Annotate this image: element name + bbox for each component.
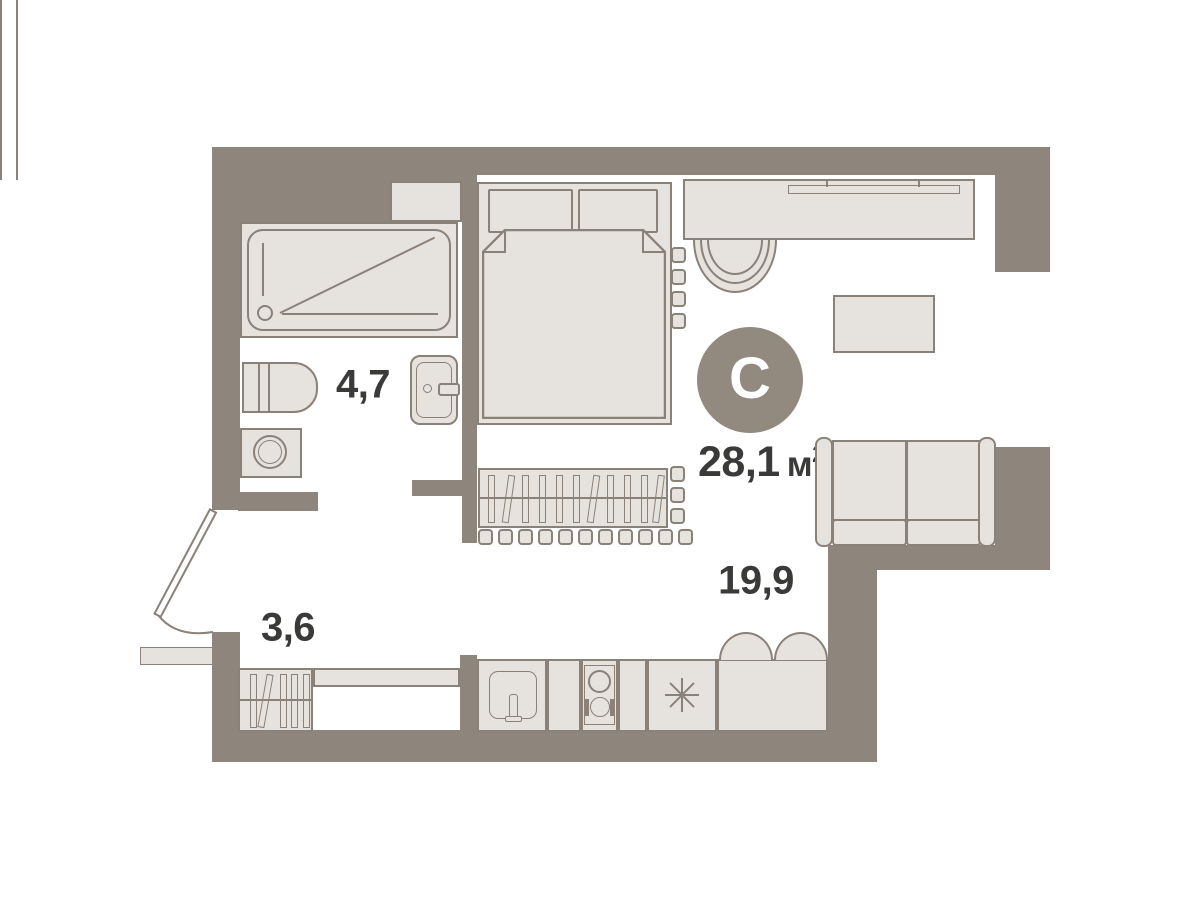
sofa-back-cushion — [832, 519, 907, 546]
desk-shelf — [788, 185, 960, 194]
radiator-segment — [658, 529, 673, 545]
hallway-shelf — [313, 668, 460, 687]
floor-plan: С 28,1м2 4,7 3,6 19,9 — [0, 0, 1200, 911]
wall — [995, 147, 1050, 272]
total-area-label: 28,1м2 — [698, 440, 825, 484]
radiator-segment — [671, 269, 686, 285]
wall — [460, 655, 477, 762]
pillow — [488, 189, 573, 233]
bathtub-drain — [257, 305, 273, 321]
kitchen-cabinet — [547, 659, 581, 732]
wall — [995, 447, 1050, 570]
area-label-living: 19,9 — [718, 559, 794, 604]
entry-threshold — [140, 647, 214, 665]
coffee-table — [833, 295, 935, 353]
radiator-segment — [538, 529, 553, 545]
kitchen-faucet-base — [505, 716, 522, 722]
radiator-segment — [598, 529, 613, 545]
radiator-segment — [578, 529, 593, 545]
pillow — [578, 189, 658, 233]
area-label-bathroom: 4,7 — [336, 363, 390, 408]
entrance-door — [128, 498, 238, 648]
wall — [212, 147, 1050, 175]
snowflake-icon — [665, 678, 699, 712]
bar-stool — [774, 632, 828, 660]
wall — [412, 480, 477, 496]
radiator-segment — [558, 529, 573, 545]
toilet — [242, 362, 318, 413]
sofa-armrest — [978, 437, 996, 547]
sofa-back-cushion — [906, 519, 981, 546]
desk-divider — [918, 181, 920, 187]
door-leaf — [155, 509, 217, 616]
sofa-seat — [832, 440, 907, 521]
radiator-segment — [618, 529, 633, 545]
cutlery-icon — [585, 699, 589, 716]
wall — [212, 147, 240, 510]
wall — [238, 492, 318, 511]
bathroom-sink-faucet — [438, 383, 460, 396]
cutlery-icon — [610, 699, 614, 716]
bathtub-line — [282, 313, 438, 315]
bar-counter — [717, 659, 828, 732]
kitchen-cabinet — [618, 659, 647, 732]
radiator-segment — [671, 247, 686, 263]
north-indicator: С — [697, 327, 803, 433]
window — [0, 0, 18, 180]
north-letter: С — [697, 327, 803, 433]
area-label-hallway: 3,6 — [261, 606, 315, 651]
radiator-segment — [678, 529, 693, 545]
bathtub-line — [262, 243, 264, 296]
radiator-segment — [518, 529, 533, 545]
blanket — [482, 229, 666, 419]
radiator-segment — [671, 313, 686, 329]
wall — [828, 545, 877, 762]
bar-stool — [719, 632, 773, 660]
plate-icon — [590, 697, 610, 717]
radiator-segment — [670, 508, 685, 524]
wall — [212, 730, 877, 762]
door-swing-arc — [158, 615, 213, 633]
radiator-segment — [671, 291, 686, 307]
radiator-segment — [478, 529, 493, 545]
sofa-seat — [906, 440, 981, 521]
radiator-segment — [670, 487, 685, 503]
radiator-segment — [638, 529, 653, 545]
desk-divider — [826, 181, 828, 187]
washing-machine-drum — [258, 440, 282, 464]
sofa-armrest — [815, 437, 833, 547]
dishwasher-icon — [588, 670, 611, 693]
wardrobe-rail — [480, 497, 666, 499]
radiator-segment — [498, 529, 513, 545]
bathroom-sink-drain — [423, 384, 432, 393]
wall-niche — [390, 181, 462, 222]
hallway-closet-rail — [240, 699, 311, 701]
radiator-segment — [670, 466, 685, 482]
